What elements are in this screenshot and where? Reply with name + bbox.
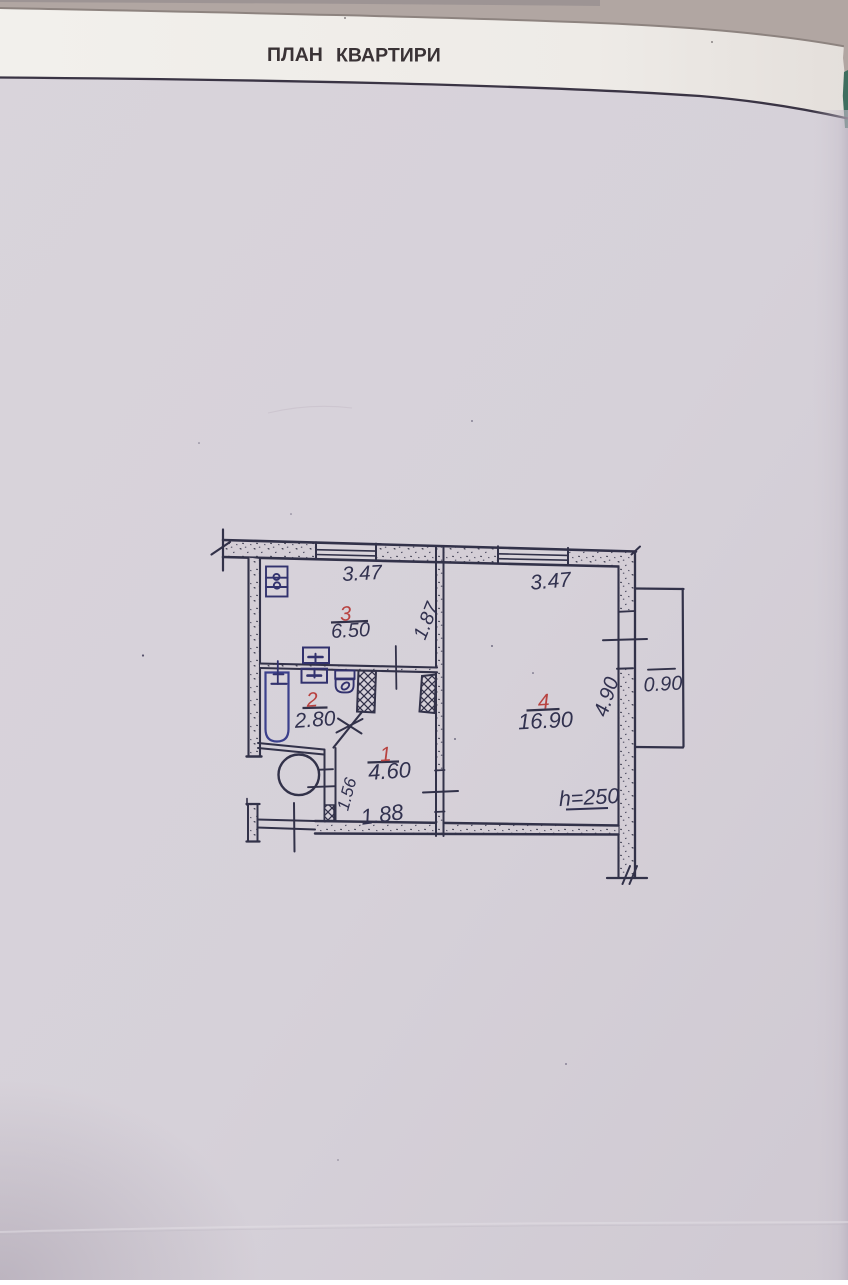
svg-text:1: 1: [379, 743, 392, 767]
svg-text:4: 4: [537, 690, 550, 714]
svg-text:ПЛАН: ПЛАН: [267, 44, 323, 66]
svg-text:3.47: 3.47: [529, 568, 573, 595]
svg-text:3: 3: [339, 602, 353, 626]
svg-text:3.47: 3.47: [341, 561, 384, 586]
svg-text:КВАРТИРИ: КВАРТИРИ: [336, 45, 441, 67]
svg-text:0.90: 0.90: [643, 672, 683, 696]
svg-text:h=250: h=250: [558, 784, 620, 811]
svg-text:2: 2: [305, 688, 320, 712]
